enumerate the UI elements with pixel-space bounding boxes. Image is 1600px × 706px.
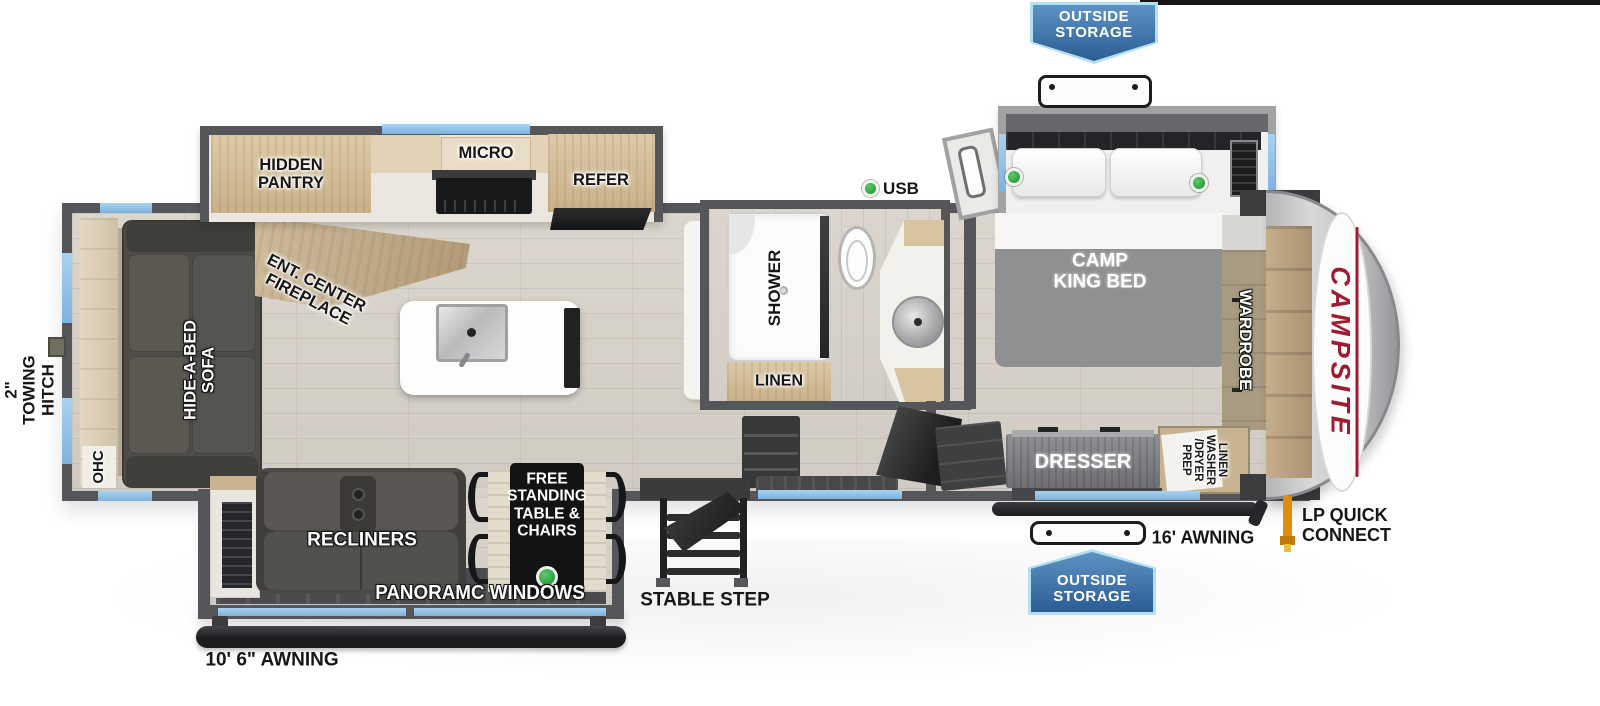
dining-chair bbox=[468, 534, 488, 584]
refer-door bbox=[550, 208, 656, 230]
window-strip bbox=[62, 253, 72, 323]
front-closet-shelves bbox=[1266, 226, 1312, 478]
wardrobe-label: WARDROBE bbox=[1236, 289, 1254, 390]
front-awning-label: 16' AWNING bbox=[1152, 528, 1255, 547]
usb-port-dot bbox=[1005, 168, 1023, 186]
panel-screw bbox=[1132, 84, 1138, 90]
kitchen-counter bbox=[371, 135, 441, 173]
pillow bbox=[1110, 148, 1202, 197]
recliner-console bbox=[340, 476, 376, 532]
window-strip bbox=[999, 134, 1006, 192]
towing-hitch-label: 2" TOWING HITCH bbox=[2, 355, 57, 425]
awning-rear-tube bbox=[196, 626, 626, 648]
stair-step bbox=[667, 550, 740, 557]
hidden-pantry-label: HIDDEN PANTRY bbox=[258, 157, 324, 193]
step-line bbox=[744, 452, 798, 455]
stable-step-label: STABLE STEP bbox=[640, 591, 770, 612]
panel-screw bbox=[1124, 530, 1130, 536]
usb-callout-dot bbox=[862, 180, 879, 197]
linen-label: LINEN bbox=[755, 372, 803, 389]
panel-screw bbox=[1046, 530, 1052, 536]
panel-screw bbox=[1049, 84, 1055, 90]
dresser-label: DRESSER bbox=[1035, 452, 1132, 474]
media-grill bbox=[222, 502, 252, 588]
panoramic-windows-label: PANORAMC WINDOWS bbox=[375, 583, 585, 605]
outside-storage-badge-top: OUTSIDE STORAGE bbox=[1030, 2, 1158, 64]
outside-storage-badge-bottom: OUTSIDE STORAGE bbox=[1028, 549, 1156, 615]
living-slideout-wall-left bbox=[198, 489, 210, 619]
shower-label: SHOWER bbox=[766, 250, 784, 327]
sink-drain bbox=[467, 328, 476, 337]
window-strip bbox=[98, 491, 152, 501]
outside-storage-top-label: OUTSIDE STORAGE bbox=[1030, 9, 1158, 41]
dining-chair bbox=[468, 472, 488, 522]
vanity-sink-drain bbox=[914, 318, 922, 326]
cupholder bbox=[352, 508, 365, 521]
storage-panel bbox=[1038, 75, 1152, 108]
window-strip bbox=[1268, 134, 1275, 192]
stair-rail bbox=[660, 498, 667, 582]
usb-port-dot bbox=[1190, 174, 1208, 192]
ohc-label: OHC bbox=[91, 450, 107, 483]
free-standing-table-label: FREE STANDING TABLE & CHAIRS bbox=[507, 470, 587, 539]
usb-label: USB bbox=[883, 180, 919, 198]
toilet-seat bbox=[846, 240, 868, 282]
bedroom-steps bbox=[935, 421, 1007, 492]
stair-foot bbox=[656, 578, 670, 587]
window-strip bbox=[1035, 491, 1200, 500]
window-strip bbox=[382, 124, 530, 134]
window-strip bbox=[414, 608, 606, 616]
window-strip bbox=[62, 398, 72, 464]
refer-label: REFER bbox=[573, 172, 629, 190]
media-cabinet-top bbox=[210, 476, 260, 490]
window-strip bbox=[218, 608, 406, 616]
vanity-wood-top bbox=[904, 220, 944, 246]
washer-dryer-prep-label: LINEN WASHER /DRYER PREP bbox=[1180, 435, 1228, 485]
dining-bench bbox=[584, 470, 606, 592]
stair-foot bbox=[734, 578, 748, 587]
stove-grate bbox=[444, 200, 524, 212]
micro-label: MICRO bbox=[459, 145, 514, 163]
hide-a-bed-sofa-label: HIDE-A-BED SOFA bbox=[182, 320, 219, 420]
lp-quick-connect-pipe bbox=[1283, 496, 1292, 538]
stair-step bbox=[667, 568, 740, 575]
outside-storage-bottom-label: OUTSIDE STORAGE bbox=[1028, 573, 1156, 605]
bed-slide-back-wall bbox=[1006, 114, 1268, 132]
pillow bbox=[1012, 148, 1106, 197]
cupholder bbox=[352, 488, 365, 501]
top-edge-strip bbox=[1140, 0, 1600, 5]
campsite-logo: CAMPSITE bbox=[1325, 266, 1354, 438]
dresser-handle bbox=[1038, 427, 1058, 432]
awning-front-tube bbox=[992, 502, 1258, 516]
towing-hitch-receiver bbox=[48, 337, 66, 357]
bed-sheet bbox=[995, 213, 1227, 249]
recliners-label: RECLINERS bbox=[307, 531, 417, 552]
window-strip bbox=[100, 203, 152, 213]
dresser-top-edge bbox=[1012, 430, 1154, 437]
lp-quick-connect-label: LP QUICK CONNECT bbox=[1302, 506, 1391, 546]
step-line bbox=[744, 468, 798, 471]
step-line bbox=[744, 434, 798, 437]
campsite-swoosh bbox=[1356, 227, 1359, 477]
camp-king-bed-label: CAMP KING BED bbox=[1054, 251, 1147, 292]
lp-tip bbox=[1284, 544, 1291, 552]
entry-threshold bbox=[640, 478, 750, 500]
dresser-handle bbox=[1100, 427, 1120, 432]
floorplan: 2" TOWING HITCH OHC HIDE-A-BED SOFA ENT.… bbox=[0, 0, 1600, 706]
window-strip bbox=[758, 490, 902, 499]
bedroom-vent-grill bbox=[1230, 140, 1258, 197]
island-dishwasher bbox=[564, 308, 580, 388]
sofa-armrest bbox=[126, 222, 258, 252]
bedroom-left-wall bbox=[964, 203, 976, 409]
rear-awning-label: 10' 6" AWNING bbox=[205, 651, 338, 672]
kitchen-counter bbox=[530, 135, 550, 173]
shower-glass bbox=[820, 216, 829, 358]
